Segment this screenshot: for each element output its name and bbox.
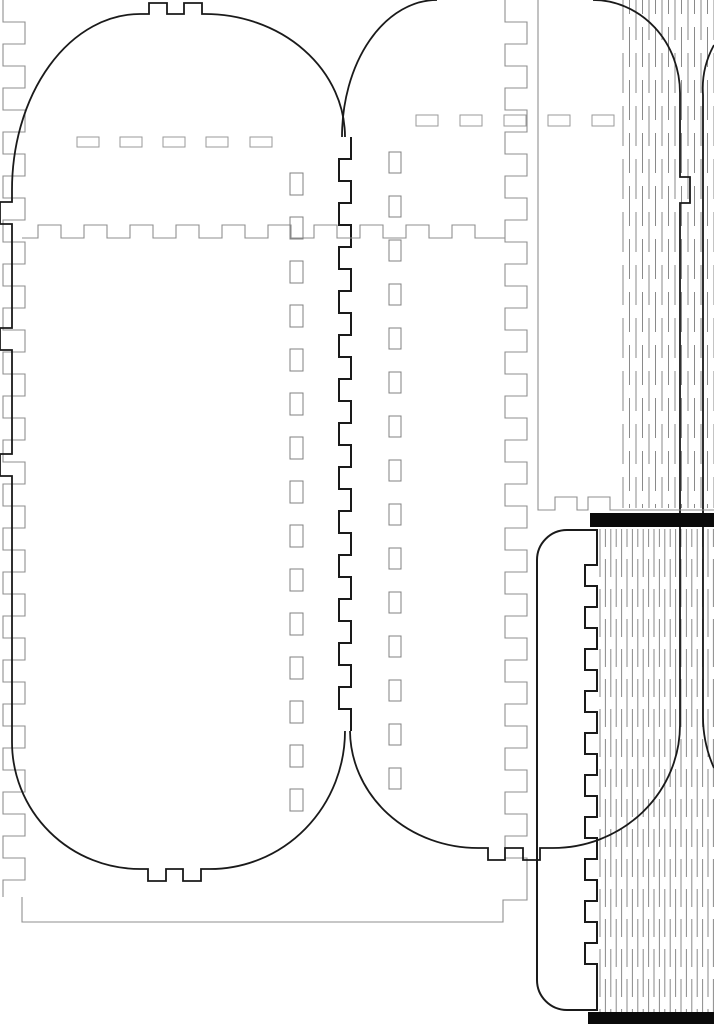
left-panel-divider-slots-slot xyxy=(290,173,303,195)
center-panel-divider-slots-slot xyxy=(389,196,401,217)
left-panel-divider-slots-slot xyxy=(290,613,303,635)
left-panel-divider-slots-slot xyxy=(290,261,303,283)
center-panel-divider-slots-slot xyxy=(389,240,401,261)
center-panel-divider-slots-slot xyxy=(389,768,401,789)
center-panel-slot-row-slot xyxy=(504,115,526,126)
slot-columns-layer xyxy=(290,152,401,811)
left-panel-divider-slots-slot xyxy=(290,393,303,415)
left-panel-divider-slots-slot xyxy=(290,349,303,371)
center-panel-divider-slots-slot xyxy=(389,636,401,657)
left-panel-divider-slots-slot xyxy=(290,569,303,591)
center-panel-slot-row-slot xyxy=(592,115,614,126)
castellations-layer xyxy=(3,0,597,1010)
left-panel-slot-row-slot xyxy=(250,137,272,147)
left-panel-divider-slots-slot xyxy=(290,437,303,459)
left-panel-slot-row-slot xyxy=(206,137,228,147)
left-panel-divider-slots-slot xyxy=(290,217,303,239)
shared-finger-edge xyxy=(339,137,351,731)
left-panel-divider-slots-slot xyxy=(290,789,303,811)
base-panel-top-finger-edge xyxy=(22,225,505,238)
laser-cut-layout-sheet xyxy=(0,0,714,1024)
center-panel-divider-slots-slot xyxy=(389,284,401,305)
center-panel-divider-slots-slot xyxy=(389,372,401,393)
center-panel-divider-slots-slot xyxy=(389,724,401,745)
left-panel-divider-slots-slot xyxy=(290,745,303,767)
base-panel-right-finger-edge xyxy=(22,0,527,922)
center-panel-divider-slots-slot xyxy=(389,460,401,481)
left-panel-slot-row-slot xyxy=(77,137,99,147)
left-stadium-bottom-outline xyxy=(12,731,345,881)
left-stadium-top-outline xyxy=(12,3,345,190)
lower-slot-bar xyxy=(588,1012,714,1024)
center-panel-divider-slots-slot xyxy=(389,680,401,701)
center-panel-slot-row-slot xyxy=(548,115,570,126)
left-panel-divider-slots-slot xyxy=(290,481,303,503)
center-panel-slot-row-slot xyxy=(460,115,482,126)
upper-hinge-layer xyxy=(623,0,714,508)
upper-slot-bar xyxy=(590,513,714,527)
left-panel-divider-slots-slot xyxy=(290,525,303,547)
center-panel-divider-slots-slot xyxy=(389,592,401,613)
center-panel-slot-row-slot xyxy=(416,115,438,126)
slot-bars-layer xyxy=(588,513,714,1024)
left-panel-slot-row-slot xyxy=(163,137,185,147)
layout-canvas xyxy=(0,0,714,1024)
center-panel-divider-slots-slot xyxy=(389,152,401,173)
left-panel-divider-slots-slot xyxy=(290,701,303,723)
left-stadium-left-edge xyxy=(0,190,12,742)
lower-hinge-layer xyxy=(600,529,713,1012)
center-panel-divider-slots-slot xyxy=(389,328,401,349)
center-panel-divider-slots-slot xyxy=(389,504,401,525)
center-panel-divider-slots-slot xyxy=(389,416,401,437)
left-panel-divider-slots-slot xyxy=(290,657,303,679)
left-panel-divider-slots-slot xyxy=(290,305,303,327)
lower-spine-panel-outline xyxy=(537,530,597,1010)
center-panel-outline xyxy=(342,0,690,860)
left-panel-slot-row-slot xyxy=(120,137,142,147)
center-panel-divider-slots-slot xyxy=(389,548,401,569)
